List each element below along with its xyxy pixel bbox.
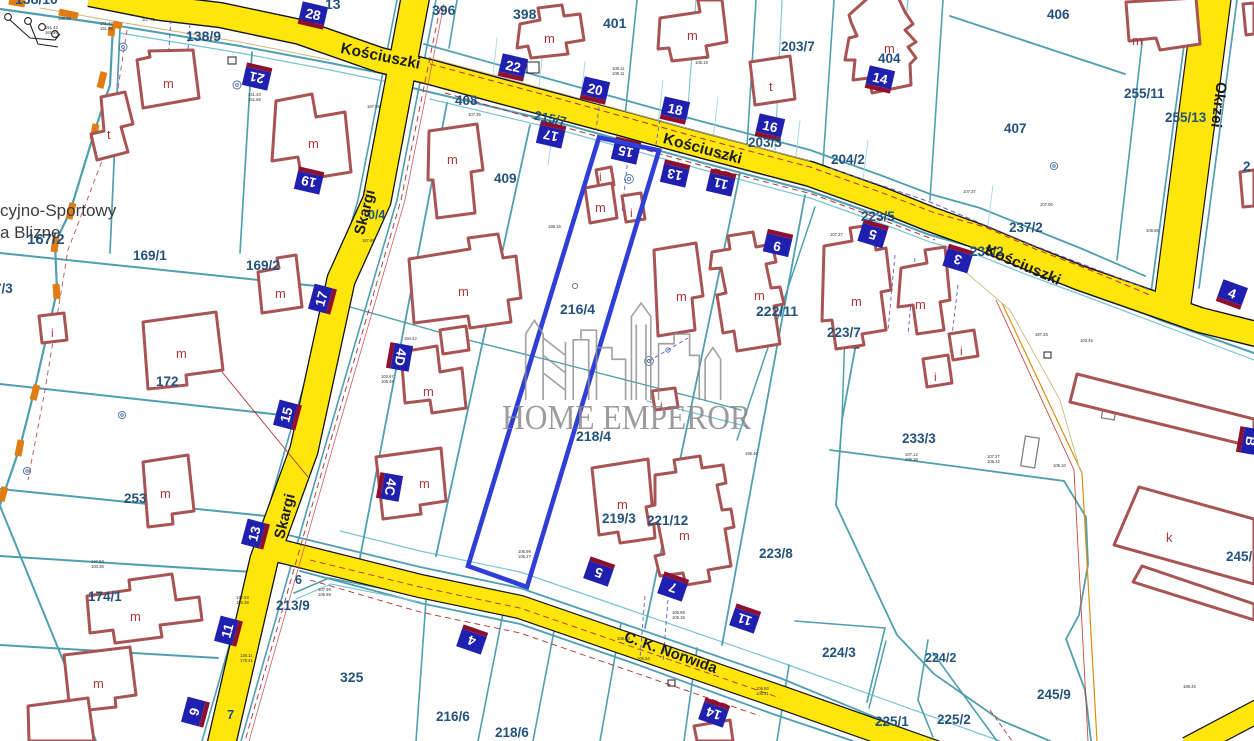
svg-text:103.45: 103.45: [1080, 338, 1093, 343]
svg-text:m: m: [679, 528, 690, 543]
svg-text:151.86: 151.86: [248, 97, 261, 102]
svg-text:a Blizne: a Blizne: [0, 223, 60, 242]
svg-text:396: 396: [432, 2, 456, 18]
svg-text:224/3: 224/3: [822, 645, 856, 660]
svg-text:m: m: [419, 476, 430, 491]
svg-text:107.06: 107.06: [1040, 202, 1053, 207]
svg-text:185.46: 185.46: [1183, 684, 1196, 689]
svg-text:m: m: [851, 294, 862, 309]
svg-text:i: i: [599, 170, 602, 184]
svg-text:194.42: 194.42: [404, 336, 417, 341]
svg-text:223/5: 223/5: [861, 209, 895, 224]
svg-text:6: 6: [295, 573, 302, 587]
svg-text:187.55: 187.55: [367, 104, 380, 109]
svg-text:7: 7: [227, 707, 234, 722]
svg-text:t: t: [107, 127, 111, 142]
svg-text:105.36: 105.36: [905, 457, 918, 462]
svg-text:m: m: [544, 31, 555, 46]
svg-text:105.46: 105.46: [381, 379, 394, 384]
svg-text:225/1: 225/1: [875, 714, 909, 729]
svg-text:t: t: [769, 79, 773, 94]
svg-text:100.38: 100.38: [91, 564, 104, 569]
svg-text:108.54: 108.54: [637, 656, 650, 661]
svg-text:204/2: 204/2: [831, 152, 865, 167]
svg-text:223/7: 223/7: [827, 325, 861, 340]
svg-text:219/3: 219/3: [602, 511, 636, 526]
svg-text:245/9: 245/9: [1037, 687, 1071, 702]
svg-text:255/11: 255/11: [1124, 86, 1165, 101]
svg-text:105.16: 105.16: [672, 615, 685, 620]
svg-text:188.98: 188.98: [58, 16, 71, 21]
svg-text:m: m: [687, 28, 698, 43]
svg-text:HOME EMPEROR: HOME EMPEROR: [502, 399, 751, 437]
svg-text:245/: 245/: [1226, 549, 1253, 564]
svg-text:m: m: [275, 286, 286, 301]
svg-text:253: 253: [124, 491, 147, 506]
svg-text:i: i: [630, 206, 633, 220]
svg-text:172: 172: [156, 374, 179, 389]
svg-text:218/6: 218/6: [495, 725, 529, 740]
svg-text:108.86: 108.86: [1146, 228, 1159, 233]
svg-text:107.35: 107.35: [468, 112, 481, 117]
svg-text:203/3: 203/3: [748, 135, 782, 150]
svg-text:203/7: 203/7: [781, 39, 815, 54]
svg-text:m: m: [884, 41, 895, 56]
svg-text:224/2: 224/2: [925, 651, 956, 665]
svg-text:233/3: 233/3: [902, 431, 936, 446]
svg-text:i: i: [960, 344, 963, 358]
svg-text:m: m: [176, 346, 187, 361]
svg-text:325: 325: [340, 669, 364, 685]
svg-text:m: m: [160, 486, 171, 501]
svg-text:178.41: 178.41: [240, 658, 253, 663]
svg-text:408: 408: [455, 93, 478, 108]
svg-text:187.26: 187.26: [1035, 332, 1048, 337]
svg-text:406: 406: [1047, 7, 1070, 22]
svg-text:k: k: [1166, 530, 1173, 545]
svg-text:m: m: [423, 384, 434, 399]
svg-text:m: m: [1132, 33, 1143, 48]
svg-text:107.71: 107.71: [142, 17, 155, 22]
svg-text:m: m: [163, 76, 174, 91]
svg-text:409: 409: [494, 171, 517, 186]
svg-text:151.86: 151.86: [100, 26, 113, 31]
svg-text:221/12: 221/12: [647, 513, 688, 528]
svg-text:4D: 4D: [392, 347, 410, 367]
svg-text:161.86: 161.86: [45, 30, 58, 35]
svg-text:i: i: [51, 326, 54, 340]
svg-text:m: m: [617, 497, 628, 512]
svg-text:m: m: [458, 284, 469, 299]
svg-text:105.10: 105.10: [1053, 463, 1066, 468]
svg-text:106.19: 106.19: [695, 60, 708, 65]
svg-text:7/3: 7/3: [0, 281, 13, 296]
svg-text:187.88: 187.88: [362, 238, 375, 243]
svg-text:13: 13: [325, 0, 341, 12]
svg-text:m: m: [130, 609, 141, 624]
svg-text:105.27: 105.27: [518, 554, 531, 559]
svg-text:216/6: 216/6: [436, 709, 470, 724]
svg-text:m: m: [93, 676, 104, 691]
svg-text:4C: 4C: [382, 477, 400, 497]
svg-text:216/4: 216/4: [560, 301, 595, 317]
svg-text:255/13: 255/13: [1165, 110, 1207, 125]
svg-text:m: m: [447, 152, 458, 167]
svg-text:225/2: 225/2: [937, 712, 971, 727]
svg-text:106.89: 106.89: [318, 592, 331, 597]
svg-text:105.32: 105.32: [987, 459, 1000, 464]
svg-text:107.37: 107.37: [963, 189, 976, 194]
svg-text:174/1: 174/1: [88, 589, 122, 604]
svg-text:222/11: 222/11: [756, 303, 798, 319]
svg-text:188.15: 188.15: [548, 224, 561, 229]
svg-text:m: m: [915, 297, 926, 312]
svg-text:169/1: 169/1: [133, 248, 167, 263]
svg-text:195.40: 195.40: [745, 451, 758, 456]
svg-text:138/9: 138/9: [186, 28, 221, 44]
svg-text:cyjno-Sportowy: cyjno-Sportowy: [0, 201, 117, 220]
svg-text:108.11: 108.11: [612, 71, 625, 76]
svg-text:106.38: 106.38: [236, 600, 249, 605]
svg-text:2: 2: [1243, 159, 1251, 174]
svg-text:407: 407: [1004, 121, 1027, 136]
svg-text:213/9: 213/9: [276, 598, 310, 613]
svg-text:107.27: 107.27: [830, 232, 843, 237]
svg-text:m: m: [308, 136, 319, 151]
svg-text:223/8: 223/8: [759, 546, 793, 561]
svg-text:169/2: 169/2: [246, 258, 280, 273]
svg-text:398: 398: [513, 6, 537, 22]
svg-text:i: i: [934, 370, 937, 384]
svg-text:401: 401: [603, 15, 627, 31]
svg-text:237/2: 237/2: [1009, 220, 1043, 235]
svg-text:m: m: [595, 200, 606, 215]
svg-text:m: m: [676, 289, 687, 304]
svg-text:138/10: 138/10: [15, 0, 58, 7]
svg-text:106.21: 106.21: [756, 691, 769, 696]
svg-text:m: m: [754, 288, 765, 303]
